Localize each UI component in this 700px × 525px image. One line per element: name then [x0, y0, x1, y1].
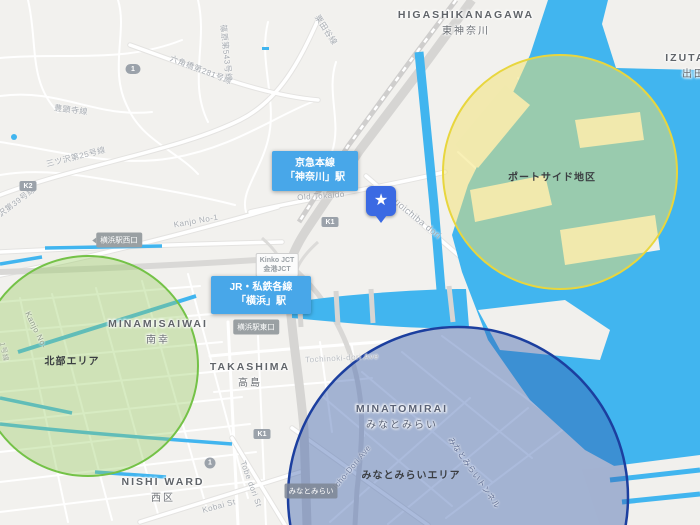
place-label-higashikanagawa: HIGASHIKANAGAWA 東神奈川 — [398, 9, 534, 37]
badge-text: みなとみらい — [289, 486, 334, 497]
station-box-jr-yokohama[interactable]: JR・私鉄各線 「横浜」駅 — [211, 276, 311, 314]
station-line2: 「横浜」駅 — [211, 295, 311, 309]
badge-text: 横浜駅東口 — [237, 322, 275, 333]
place-en: IZUTACHO — [665, 52, 700, 64]
jct-ja: 金港JCT — [260, 265, 295, 274]
badge-minatomirai-station: みなとみらい — [285, 484, 338, 499]
place-en: MINAMISAIWAI — [108, 318, 208, 330]
map-canvas[interactable]: HIGASHIKANAGAWA 東神奈川 IZUTACHO 出田町 MINAMI… — [0, 0, 700, 525]
route-shield-1: 1 — [126, 64, 141, 74]
area-label-minatomirai: みなとみらいエリア — [362, 467, 461, 482]
place-ja: 西区 — [122, 489, 205, 504]
station-line1: JR・私鉄各線 — [211, 281, 311, 295]
route-shield-k2: K2 — [20, 181, 37, 191]
badge-kinko-jct: Kinko JCT 金港JCT — [256, 253, 299, 277]
area-label-portside: ポートサイド地区 — [508, 169, 596, 184]
place-label-nishi-ward: NISHI WARD 西区 — [122, 476, 205, 504]
place-label-minamisaiwai: MINAMISAIWAI 南幸 — [108, 318, 208, 346]
jct-en: Kinko JCT — [260, 256, 295, 265]
place-label-minatomirai: MINATOMIRAI みなとみらい — [356, 403, 448, 431]
place-en: NISHI WARD — [122, 476, 205, 488]
route-shield-k1: K1 — [322, 217, 339, 227]
star-icon: ★ — [374, 193, 388, 209]
place-label-izutacho: IZUTACHO 出田町 — [665, 52, 700, 80]
place-en: HIGASHIKANAGAWA — [398, 9, 534, 21]
badge-yokohama-west-exit: 横浜駅西口 — [96, 233, 142, 248]
station-box-keikyu-kanagawa[interactable]: 京急本線 「神奈川」駅 — [272, 151, 358, 191]
map-base — [0, 0, 700, 525]
left-arrow-icon — [92, 237, 96, 243]
place-label-takashima: TAKASHIMA 高島 — [210, 361, 290, 389]
place-en: MINATOMIRAI — [356, 403, 448, 415]
route-shield-1-south: 1 — [205, 458, 216, 469]
saved-place-marker[interactable]: ★ — [366, 186, 396, 216]
badge-text: 横浜駅西口 — [100, 235, 138, 246]
station-line1: 京急本線 — [272, 157, 358, 171]
place-ja: 出田町 — [665, 65, 700, 80]
place-en: TAKASHIMA — [210, 361, 290, 373]
marker-pointer — [375, 215, 387, 223]
area-label-hokubu: 北部エリア — [45, 353, 100, 368]
route-shield-k1-south: K1 — [254, 429, 271, 439]
place-ja: みなとみらい — [356, 416, 448, 431]
station-line2: 「神奈川」駅 — [272, 171, 358, 185]
place-ja: 高島 — [210, 374, 290, 389]
badge-yokohama-east-exit: 横浜駅東口 — [233, 320, 279, 335]
place-ja: 南幸 — [108, 331, 208, 346]
place-ja: 東神奈川 — [398, 22, 534, 37]
